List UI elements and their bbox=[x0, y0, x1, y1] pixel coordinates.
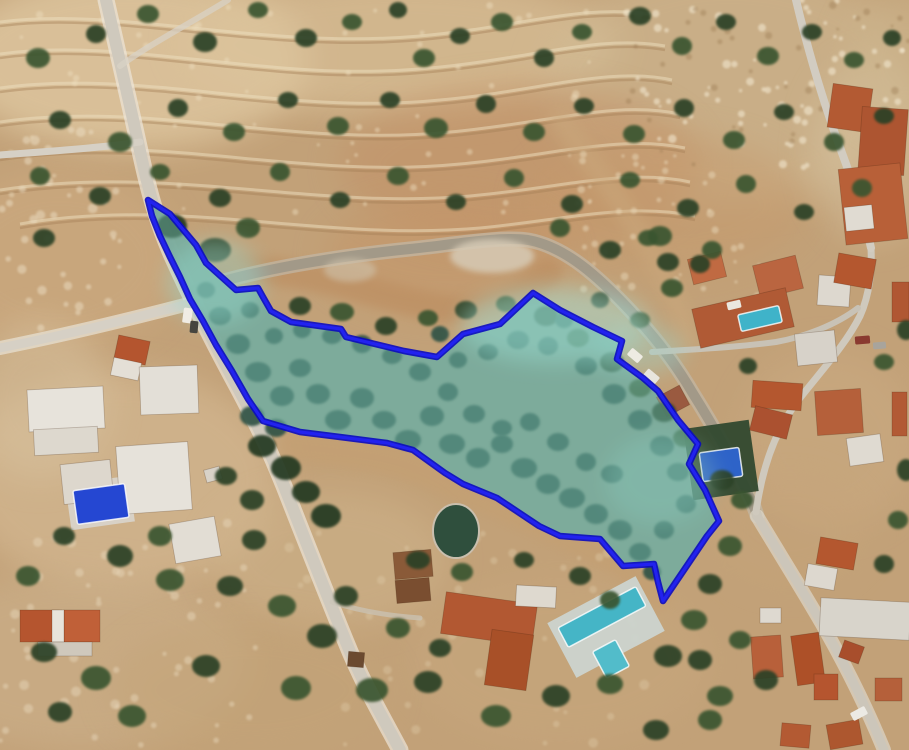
rock-mottle bbox=[577, 186, 585, 194]
tree bbox=[597, 674, 623, 694]
rock-mottle bbox=[76, 127, 86, 137]
rock-mottle bbox=[425, 661, 431, 667]
tree bbox=[107, 545, 133, 567]
tree bbox=[26, 48, 50, 68]
tree bbox=[240, 490, 264, 510]
rock-mottle bbox=[891, 25, 894, 28]
tree bbox=[334, 586, 358, 606]
building bbox=[751, 380, 803, 410]
tree bbox=[716, 14, 736, 30]
rock-mottle bbox=[700, 10, 706, 16]
gravel-clearing bbox=[324, 258, 376, 282]
tree bbox=[572, 24, 592, 40]
rock-mottle bbox=[356, 124, 362, 130]
tree bbox=[242, 530, 266, 550]
rock-mottle bbox=[883, 97, 889, 103]
rock-mottle bbox=[789, 138, 795, 144]
tree bbox=[49, 111, 71, 129]
rock-mottle bbox=[784, 85, 788, 89]
rock-mottle bbox=[553, 721, 559, 727]
rock-mottle bbox=[863, 9, 870, 16]
tree bbox=[638, 230, 658, 246]
rock-mottle bbox=[799, 137, 806, 144]
rock-mottle bbox=[802, 119, 808, 125]
tree bbox=[561, 195, 583, 213]
tree bbox=[754, 670, 778, 690]
rock-mottle bbox=[363, 202, 367, 206]
rock-mottle bbox=[3, 684, 8, 689]
rock-mottle bbox=[490, 557, 497, 564]
rock-mottle bbox=[803, 5, 809, 11]
rock-mottle bbox=[583, 225, 589, 231]
rock-mottle bbox=[659, 105, 662, 108]
building bbox=[892, 282, 909, 322]
rock-mottle bbox=[829, 1, 837, 9]
tree bbox=[356, 678, 388, 702]
rock-mottle bbox=[67, 193, 71, 197]
rock-mottle bbox=[779, 160, 787, 168]
rock-mottle bbox=[91, 734, 98, 741]
rock-mottle bbox=[891, 87, 899, 95]
tree bbox=[643, 720, 669, 740]
tree bbox=[599, 241, 621, 259]
tree bbox=[150, 164, 170, 180]
building bbox=[484, 629, 533, 690]
rock-mottle bbox=[245, 90, 249, 94]
tree bbox=[824, 133, 844, 151]
rock-mottle bbox=[110, 231, 117, 238]
rock-mottle bbox=[872, 49, 877, 54]
building bbox=[139, 365, 199, 415]
tree bbox=[30, 167, 50, 185]
gravel-clearing bbox=[450, 239, 534, 273]
satellite-map[interactable] bbox=[0, 0, 909, 750]
building bbox=[814, 674, 838, 700]
rock-mottle bbox=[342, 30, 347, 35]
rock-mottle bbox=[630, 234, 636, 240]
tree bbox=[431, 326, 449, 342]
tree bbox=[271, 456, 301, 480]
tree bbox=[148, 526, 172, 546]
rock-mottle bbox=[631, 207, 637, 213]
rock-mottle bbox=[595, 553, 603, 561]
rock-mottle bbox=[24, 646, 31, 653]
rock-mottle bbox=[734, 280, 737, 283]
rock-mottle bbox=[420, 31, 425, 36]
rock-mottle bbox=[285, 543, 295, 553]
tree bbox=[550, 219, 570, 237]
rock-mottle bbox=[19, 680, 29, 690]
satellite-map-viewport bbox=[0, 0, 909, 750]
rock-mottle bbox=[68, 127, 74, 133]
tree bbox=[81, 666, 111, 690]
rock-mottle bbox=[884, 60, 892, 68]
rock-mottle bbox=[246, 714, 252, 720]
tree bbox=[137, 5, 159, 23]
tree bbox=[108, 132, 132, 152]
tree bbox=[386, 618, 410, 638]
rock-mottle bbox=[24, 157, 32, 165]
rock-mottle bbox=[30, 135, 33, 138]
rock-mottle bbox=[138, 742, 144, 748]
tree bbox=[375, 317, 397, 335]
rock-mottle bbox=[791, 132, 795, 136]
rock-mottle bbox=[542, 636, 547, 641]
rock-mottle bbox=[776, 86, 780, 90]
rock-mottle bbox=[72, 81, 78, 87]
rock-mottle bbox=[607, 713, 614, 720]
rock-mottle bbox=[577, 556, 581, 560]
rock-mottle bbox=[415, 114, 419, 118]
tree bbox=[414, 671, 442, 693]
rock-mottle bbox=[793, 116, 801, 124]
rock-mottle bbox=[712, 226, 719, 233]
rock-mottle bbox=[708, 86, 711, 89]
tree bbox=[481, 705, 511, 727]
building bbox=[892, 392, 907, 436]
rock-mottle bbox=[253, 645, 258, 650]
tree bbox=[569, 567, 591, 585]
tree bbox=[623, 125, 645, 143]
rock-mottle bbox=[668, 135, 677, 144]
tree bbox=[389, 2, 407, 18]
rock-mottle bbox=[683, 120, 688, 125]
tree bbox=[844, 52, 864, 68]
rock-mottle bbox=[701, 286, 707, 292]
building bbox=[844, 205, 874, 232]
rock-mottle bbox=[666, 99, 671, 104]
rock-mottle bbox=[738, 121, 743, 126]
rock-mottle bbox=[526, 13, 532, 19]
rock-mottle bbox=[224, 58, 229, 63]
tree bbox=[542, 685, 570, 707]
rock-mottle bbox=[20, 35, 24, 39]
rock-mottle bbox=[142, 544, 148, 550]
tree bbox=[33, 229, 55, 247]
tree bbox=[523, 123, 545, 141]
rock-mottle bbox=[662, 168, 668, 174]
rock-mottle bbox=[29, 215, 38, 224]
rock-mottle bbox=[621, 273, 629, 281]
tree bbox=[707, 686, 733, 706]
rock-mottle bbox=[52, 174, 56, 178]
rock-mottle bbox=[73, 75, 79, 81]
building bbox=[52, 610, 64, 642]
rock-mottle bbox=[582, 244, 587, 249]
rock-mottle bbox=[805, 163, 810, 168]
rock-mottle bbox=[37, 324, 44, 331]
building bbox=[760, 608, 781, 623]
rock-mottle bbox=[717, 39, 722, 44]
rock-mottle bbox=[711, 26, 717, 32]
tree bbox=[429, 639, 451, 657]
tree bbox=[307, 624, 337, 648]
rock-mottle bbox=[588, 185, 592, 189]
rock-mottle bbox=[895, 98, 902, 105]
rock-mottle bbox=[639, 680, 649, 690]
rock-mottle bbox=[303, 575, 312, 584]
tree bbox=[874, 555, 894, 573]
rock-mottle bbox=[316, 530, 322, 536]
rock-mottle bbox=[516, 16, 523, 23]
tree bbox=[278, 92, 298, 108]
rock-mottle bbox=[226, 5, 231, 10]
tree bbox=[311, 504, 341, 528]
rock-mottle bbox=[739, 89, 742, 92]
rock-mottle bbox=[182, 207, 185, 210]
tree bbox=[156, 569, 184, 591]
rock-mottle bbox=[673, 154, 676, 157]
tree bbox=[491, 13, 513, 31]
rock-mottle bbox=[587, 60, 590, 63]
building bbox=[875, 678, 902, 701]
rock-mottle bbox=[839, 51, 846, 58]
rock-mottle bbox=[635, 76, 640, 81]
rock-mottle bbox=[405, 702, 411, 708]
tree bbox=[723, 131, 745, 149]
pond bbox=[433, 504, 479, 558]
tree bbox=[657, 253, 679, 271]
tree bbox=[86, 25, 106, 43]
rock-mottle bbox=[60, 272, 66, 278]
rock-mottle bbox=[647, 118, 652, 123]
rock-mottle bbox=[151, 722, 157, 728]
rock-mottle bbox=[86, 583, 91, 588]
rock-mottle bbox=[644, 92, 649, 97]
rock-mottle bbox=[33, 538, 42, 547]
rock-mottle bbox=[75, 569, 83, 577]
rock-mottle bbox=[800, 104, 804, 108]
tree bbox=[168, 99, 188, 117]
tree bbox=[654, 645, 682, 667]
rock-mottle bbox=[691, 162, 695, 166]
tree bbox=[118, 705, 146, 727]
tree bbox=[672, 37, 692, 55]
rock-mottle bbox=[253, 123, 257, 127]
rock-mottle bbox=[686, 20, 691, 25]
rock-mottle bbox=[173, 124, 177, 128]
rock-mottle bbox=[580, 151, 587, 158]
building bbox=[33, 426, 98, 455]
rock-mottle bbox=[86, 284, 91, 289]
rock-mottle bbox=[626, 98, 632, 104]
rock-mottle bbox=[455, 585, 463, 593]
rock-mottle bbox=[76, 186, 83, 193]
rock-mottle bbox=[501, 210, 506, 215]
rock-mottle bbox=[579, 158, 586, 165]
rock-mottle bbox=[118, 239, 122, 243]
tree bbox=[209, 189, 231, 207]
tree bbox=[677, 199, 699, 217]
rock-mottle bbox=[411, 725, 420, 734]
rock-mottle bbox=[346, 70, 351, 75]
tree bbox=[574, 98, 594, 114]
rock-mottle bbox=[615, 172, 621, 178]
rock-mottle bbox=[192, 24, 198, 30]
rock-mottle bbox=[187, 612, 196, 621]
tree bbox=[330, 192, 350, 208]
tree bbox=[215, 467, 237, 485]
tree bbox=[327, 117, 349, 135]
tree bbox=[450, 28, 470, 44]
tree bbox=[629, 7, 651, 25]
rock-mottle bbox=[175, 664, 182, 671]
tree bbox=[217, 576, 243, 596]
rock-mottle bbox=[37, 286, 46, 295]
tree bbox=[289, 297, 311, 315]
rock-mottle bbox=[897, 16, 902, 21]
rock-mottle bbox=[715, 98, 720, 103]
tree bbox=[729, 631, 751, 649]
building bbox=[780, 723, 811, 748]
rock-mottle bbox=[679, 273, 682, 276]
rock-mottle bbox=[240, 564, 247, 571]
rock-mottle bbox=[765, 32, 772, 39]
rock-mottle bbox=[589, 586, 597, 594]
building bbox=[846, 434, 884, 466]
rock-mottle bbox=[828, 68, 836, 76]
building bbox=[826, 719, 863, 749]
tree bbox=[718, 536, 742, 556]
rock-mottle bbox=[758, 24, 766, 32]
tree bbox=[446, 194, 466, 210]
building bbox=[169, 516, 221, 563]
rock-mottle bbox=[862, 25, 866, 29]
tree bbox=[874, 354, 894, 370]
rock-mottle bbox=[839, 36, 843, 40]
rock-mottle bbox=[23, 136, 31, 144]
building bbox=[804, 564, 837, 591]
tree bbox=[681, 610, 707, 630]
building bbox=[834, 253, 877, 289]
rock-mottle bbox=[616, 208, 622, 214]
rock-mottle bbox=[619, 241, 624, 246]
tree bbox=[661, 279, 683, 297]
rock-mottle bbox=[664, 28, 669, 33]
rock-mottle bbox=[346, 160, 350, 164]
rock-mottle bbox=[162, 652, 166, 656]
rock-mottle bbox=[196, 95, 202, 101]
rock-mottle bbox=[785, 142, 789, 146]
rock-mottle bbox=[64, 282, 73, 291]
rock-mottle bbox=[563, 710, 567, 714]
rock-mottle bbox=[317, 143, 320, 146]
tree bbox=[330, 303, 354, 321]
rock-mottle bbox=[5, 256, 11, 262]
tree bbox=[688, 650, 712, 670]
tree bbox=[270, 163, 290, 181]
tree bbox=[600, 591, 620, 609]
tree bbox=[281, 676, 311, 700]
rock-mottle bbox=[660, 149, 663, 152]
rock-mottle bbox=[486, 2, 493, 9]
rock-mottle bbox=[657, 198, 662, 203]
rock-mottle bbox=[354, 153, 358, 157]
rock-mottle bbox=[104, 298, 112, 306]
rock-mottle bbox=[242, 588, 246, 592]
rock-mottle bbox=[796, 45, 802, 51]
car bbox=[189, 321, 198, 334]
tree bbox=[802, 24, 822, 40]
tree bbox=[424, 118, 448, 138]
car bbox=[855, 335, 871, 344]
tree bbox=[31, 642, 57, 662]
tree bbox=[731, 491, 753, 509]
building bbox=[27, 386, 105, 432]
rock-mottle bbox=[467, 149, 473, 155]
rock-mottle bbox=[804, 106, 813, 115]
rock-mottle bbox=[560, 565, 566, 571]
building bbox=[64, 610, 100, 642]
tree bbox=[223, 123, 245, 141]
rock-mottle bbox=[24, 704, 33, 713]
rock-mottle bbox=[375, 128, 380, 133]
rock-mottle bbox=[588, 738, 598, 748]
rock-mottle bbox=[641, 166, 645, 170]
tree bbox=[888, 511, 908, 529]
tree bbox=[295, 29, 317, 47]
rock-mottle bbox=[475, 669, 484, 678]
rock-mottle bbox=[657, 137, 661, 141]
rock-mottle bbox=[373, 9, 377, 13]
rock-mottle bbox=[749, 69, 753, 73]
rock-mottle bbox=[9, 192, 15, 198]
rock-mottle bbox=[26, 298, 33, 305]
rock-mottle bbox=[568, 154, 571, 157]
tree bbox=[874, 108, 894, 124]
rock-mottle bbox=[761, 87, 766, 92]
building bbox=[838, 163, 908, 245]
rock-mottle bbox=[404, 546, 409, 551]
rock-mottle bbox=[417, 42, 423, 48]
rock-mottle bbox=[833, 35, 837, 39]
rock-mottle bbox=[113, 667, 119, 673]
rock-mottle bbox=[746, 78, 754, 86]
rock-mottle bbox=[112, 188, 119, 195]
building bbox=[815, 388, 864, 435]
rock-mottle bbox=[223, 519, 232, 528]
tree bbox=[698, 710, 722, 730]
rock-mottle bbox=[215, 723, 219, 727]
rock-mottle bbox=[117, 569, 125, 577]
rock-mottle bbox=[503, 200, 509, 206]
rock-mottle bbox=[763, 123, 767, 127]
tree bbox=[89, 187, 111, 205]
rock-mottle bbox=[753, 58, 756, 61]
rock-mottle bbox=[480, 531, 486, 537]
rock-mottle bbox=[21, 236, 29, 244]
rock-mottle bbox=[693, 7, 698, 12]
rock-mottle bbox=[410, 184, 417, 191]
rock-mottle bbox=[71, 687, 81, 697]
rock-mottle bbox=[591, 241, 598, 248]
rock-mottle bbox=[298, 582, 304, 588]
tree bbox=[387, 167, 409, 185]
tree bbox=[248, 2, 268, 18]
rock-mottle bbox=[292, 209, 298, 215]
rock-mottle bbox=[88, 204, 98, 214]
rock-mottle bbox=[229, 701, 234, 706]
rock-mottle bbox=[628, 283, 636, 291]
rock-mottle bbox=[711, 84, 718, 91]
rock-mottle bbox=[654, 24, 662, 32]
rock-mottle bbox=[10, 609, 20, 619]
tree bbox=[757, 47, 779, 65]
rock-mottle bbox=[722, 60, 731, 69]
rock-mottle bbox=[25, 654, 31, 660]
rock-mottle bbox=[583, 9, 589, 15]
rock-mottle bbox=[117, 265, 121, 269]
